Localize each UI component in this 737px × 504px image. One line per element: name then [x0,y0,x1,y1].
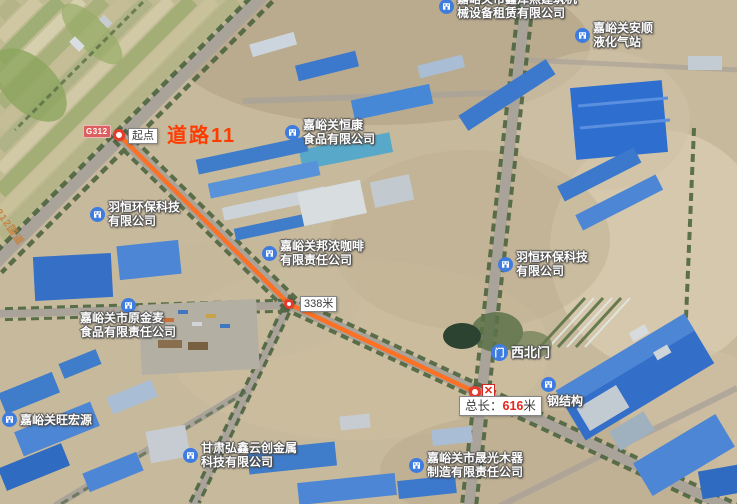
poi-gangjiegou[interactable]: 钢结构 [547,394,583,408]
building-icon [498,257,513,272]
poi-wanghongyuan[interactable]: 嘉峪关旺宏源 [2,412,92,427]
poi-yuheng-east[interactable]: 羽恒环保科技有限公司 [498,250,588,278]
poi-label: 甘肃弘鑫云创金属科技有限公司 [201,441,297,469]
poi-yuanjinmai[interactable]: 嘉峪关市原金麦食品有限责任公司 [80,311,176,339]
poi-anshun[interactable]: 嘉峪关安顺液化气站 [575,21,653,49]
building-icon[interactable] [541,377,556,392]
route-waypoint-marker[interactable] [284,299,294,309]
poi-label: 羽恒环保科技有限公司 [516,250,588,278]
segment-distance-label: 338米 [300,296,337,312]
start-point-label: 起点 [128,128,158,144]
total-distance-label: 总长：616米 [459,396,542,416]
poi-label: 嘉峪关邦浓咖啡有限责任公司 [280,239,364,267]
svg-text:门: 门 [495,347,505,360]
building-icon [409,458,424,473]
poi-hongxin[interactable]: 甘肃弘鑫云创金属科技有限公司 [183,441,297,469]
poi-label: 嘉峪关旺宏源 [20,413,92,427]
poi-yuheng-west[interactable]: 羽恒环保科技有限公司 [90,200,180,228]
poi-xibeimen[interactable]: 门 西北门 [491,344,550,361]
total-prefix: 总长： [465,399,503,413]
map-canvas[interactable]: 312国道 G312 道路11 嘉峪关市鑫泽熙建筑机械设备租赁有限公司 嘉峪关安… [0,0,737,504]
poi-label: 羽恒环保科技有限公司 [108,200,180,228]
road-annotation: 道路11 [167,119,236,148]
poi-xinzexi[interactable]: 嘉峪关市鑫泽熙建筑机械设备租赁有限公司 [439,0,577,20]
poi-label: 嘉峪关市原金麦食品有限责任公司 [80,311,176,339]
route-start-marker[interactable] [113,129,125,141]
gate-icon: 门 [491,344,508,361]
building-icon [262,246,277,261]
poi-label: 钢结构 [547,394,583,408]
building-icon [2,412,17,427]
poi-hengkang[interactable]: 嘉峪关恒康食品有限公司 [285,118,375,146]
building-icon [575,28,590,43]
building-icon [90,207,105,222]
poi-shengguang[interactable]: 嘉峪关市晟光木器制造有限责任公司 [409,451,523,479]
poi-label: 嘉峪关市鑫泽熙建筑机械设备租赁有限公司 [457,0,577,20]
road-shield-g312: G312 [83,125,111,138]
total-value: 616 [503,399,524,413]
poi-label: 嘉峪关恒康食品有限公司 [303,118,375,146]
poi-bangnong[interactable]: 嘉峪关邦浓咖啡有限责任公司 [262,239,364,267]
building-icon [439,0,454,14]
route-polyline [0,0,737,504]
poi-label: 嘉峪关安顺液化气站 [593,21,653,49]
building-icon [183,448,198,463]
total-suffix: 米 [523,399,536,413]
poi-label: 嘉峪关市晟光木器制造有限责任公司 [427,451,523,479]
poi-label: 西北门 [511,346,550,360]
building-icon [285,125,300,140]
